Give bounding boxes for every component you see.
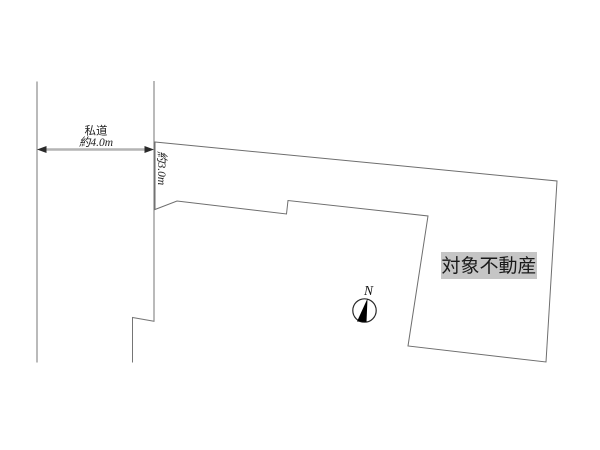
road-name-label: 私道 xyxy=(85,124,108,138)
north-compass: N xyxy=(353,283,376,322)
property-label-text: 対象不動産 xyxy=(441,255,536,277)
plot-plan-drawing: 私道 約4.0m 約3.0m 対象不動産 N xyxy=(0,0,600,450)
arrowhead-left-icon xyxy=(37,146,47,153)
road-width-label: 約4.0m xyxy=(79,136,113,149)
frontage-width-label: 約3.0m xyxy=(155,151,168,185)
road-width-dimension: 私道 約4.0m xyxy=(37,124,154,154)
plot-plan-canvas: 私道 約4.0m 約3.0m 対象不動産 N xyxy=(0,0,600,450)
road-right-edge xyxy=(133,81,155,363)
arrowhead-right-icon xyxy=(145,146,155,153)
north-label: N xyxy=(363,283,374,298)
property-label: 対象不動産 xyxy=(441,252,537,279)
